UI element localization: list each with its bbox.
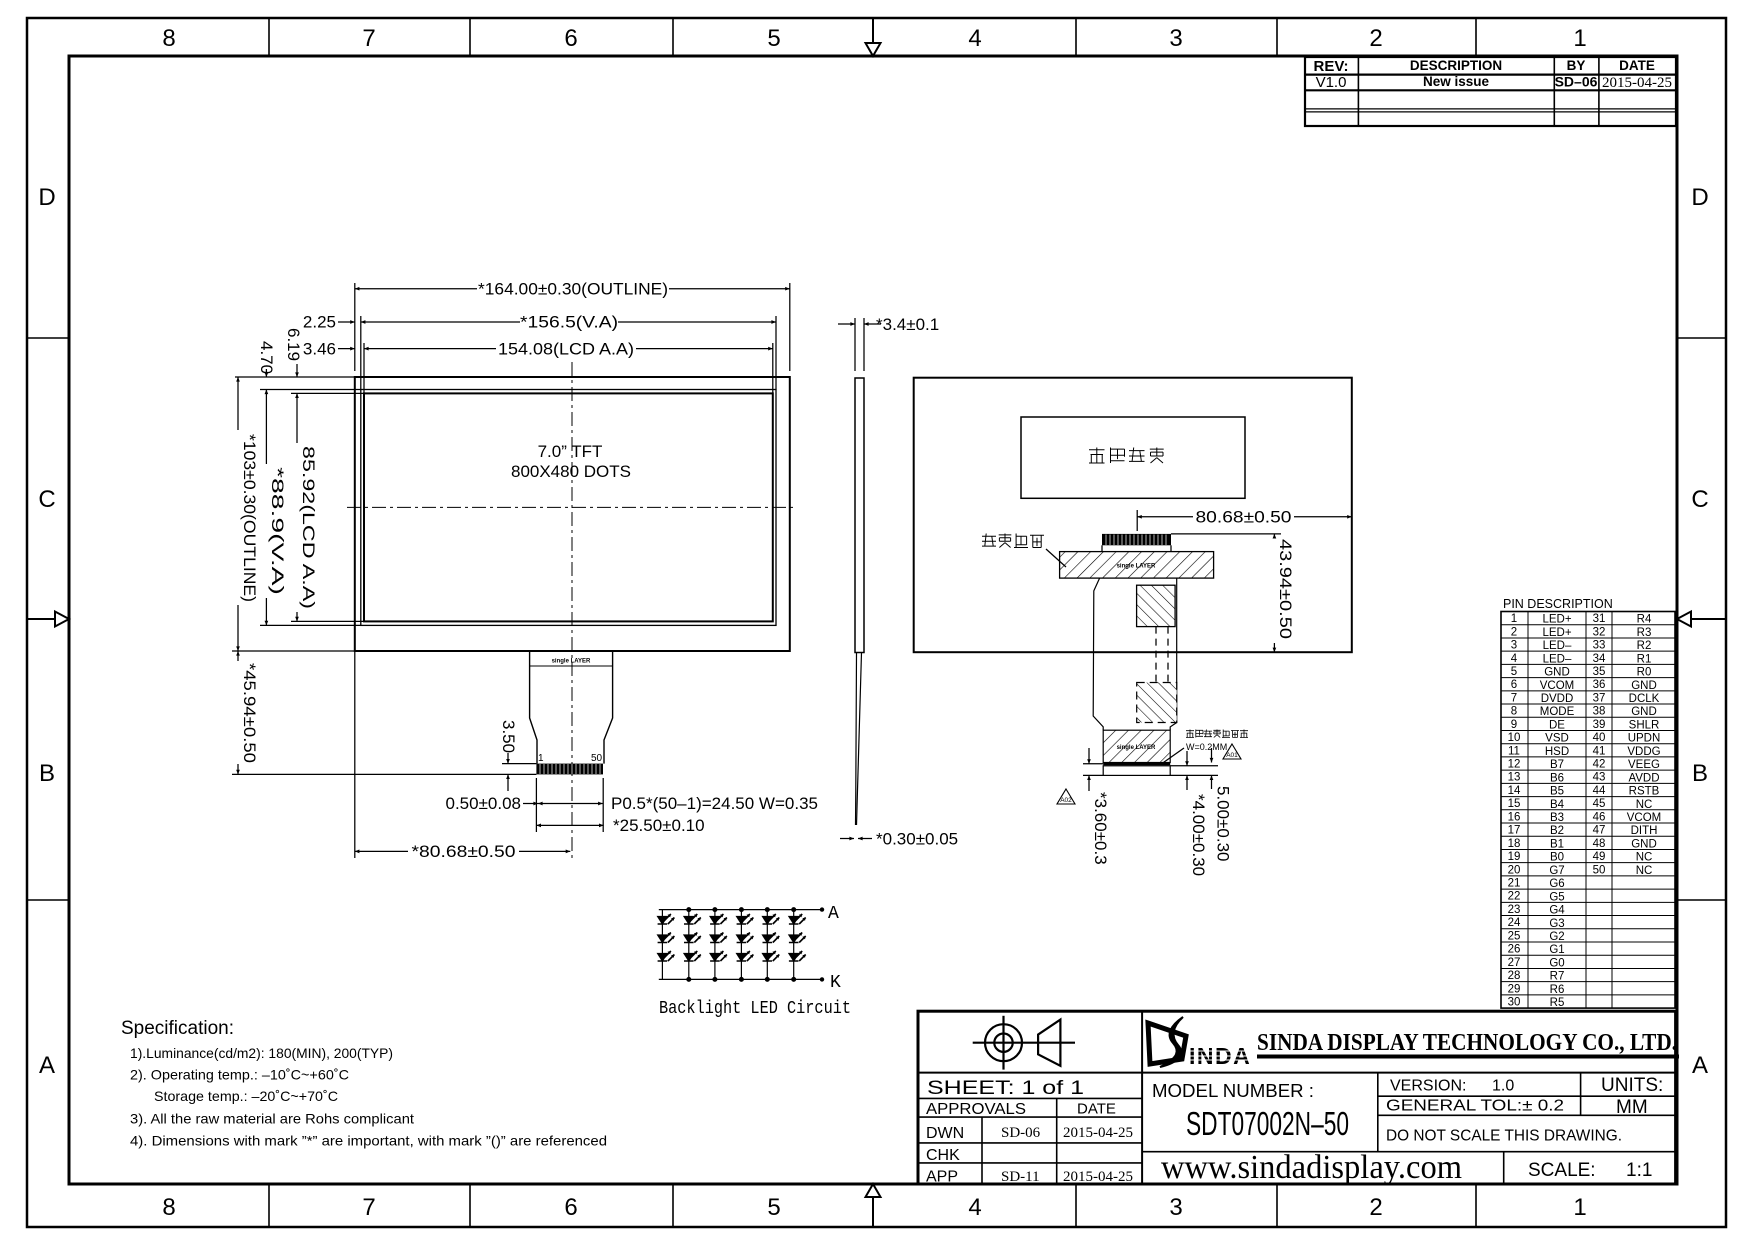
svg-text:800X480 DOTS: 800X480 DOTS	[511, 462, 631, 481]
svg-text:*3.4±0.1: *3.4±0.1	[876, 315, 939, 334]
svg-text:9: 9	[1511, 719, 1517, 731]
svg-text:7.0” TFT: 7.0” TFT	[538, 442, 603, 461]
svg-text:G5: G5	[1549, 891, 1564, 903]
svg-text:G6: G6	[1549, 878, 1564, 890]
svg-text:B5: B5	[1550, 786, 1564, 798]
svg-text:33: 33	[1593, 640, 1606, 652]
svg-text:*0.30±0.05: *0.30±0.05	[876, 829, 958, 848]
svg-text:SD–06: SD–06	[1555, 74, 1598, 90]
svg-text:*25.50±0.10: *25.50±0.10	[613, 816, 705, 835]
svg-text:R4: R4	[1637, 614, 1652, 626]
svg-text:85.92(LCD A.A): 85.92(LCD A.A)	[299, 446, 318, 609]
svg-text:SHEET: 1 of 1: SHEET: 1 of 1	[927, 1078, 1084, 1099]
svg-text:1: 1	[1573, 25, 1586, 52]
svg-text:3: 3	[1511, 640, 1517, 652]
svg-text:HSD: HSD	[1545, 746, 1569, 758]
svg-text:V1.0: V1.0	[1316, 74, 1347, 91]
svg-text:VCOM: VCOM	[1627, 812, 1662, 824]
svg-text:DO NOT SCALE THIS DRAWING.: DO NOT SCALE THIS DRAWING.	[1386, 1128, 1622, 1145]
svg-text:48: 48	[1593, 838, 1606, 850]
svg-text:REV:: REV:	[1313, 58, 1348, 75]
svg-text:1: 1	[1573, 1194, 1586, 1221]
svg-text:12: 12	[1508, 759, 1521, 771]
svg-text:17: 17	[1508, 825, 1521, 837]
svg-text:B: B	[1692, 760, 1708, 787]
svg-text:26: 26	[1508, 944, 1521, 956]
svg-text:5: 5	[767, 25, 780, 52]
svg-text:R6: R6	[1550, 984, 1565, 996]
svg-text:13: 13	[1508, 772, 1521, 784]
svg-text:G3: G3	[1549, 918, 1564, 930]
svg-text:NC: NC	[1636, 799, 1653, 811]
svg-text:GND: GND	[1631, 706, 1657, 718]
svg-text:*4.00±0.30: *4.00±0.30	[1189, 794, 1208, 876]
svg-text:22: 22	[1508, 891, 1521, 903]
svg-text:18: 18	[1508, 838, 1521, 850]
svg-text:B2: B2	[1550, 825, 1564, 837]
svg-text:4). Dimensions with mark ”: 4). Dimensions with mark ”*” are importa…	[130, 1133, 607, 1149]
svg-text:15: 15	[1508, 798, 1521, 810]
svg-text:28: 28	[1508, 970, 1521, 982]
svg-text:SDT07002N–50: SDT07002N–50	[1186, 1105, 1349, 1142]
svg-text:2: 2	[1369, 25, 1382, 52]
svg-text:Backlight LED Circuit: Backlight LED Circuit	[659, 999, 851, 1019]
svg-text:G7: G7	[1549, 865, 1564, 877]
svg-text:B7: B7	[1550, 759, 1564, 771]
svg-text:Storage temp.: –20˚C~+70˚C: Storage temp.: –20˚C~+70˚C	[154, 1088, 338, 1104]
svg-text:DITH: DITH	[1631, 825, 1658, 837]
svg-text:R2: R2	[1637, 640, 1652, 652]
svg-text:LED–: LED–	[1543, 640, 1572, 652]
svg-text:41: 41	[1593, 745, 1606, 757]
svg-text:DCLK: DCLK	[1629, 693, 1660, 705]
svg-text:DE: DE	[1549, 720, 1565, 732]
svg-text:C: C	[1691, 486, 1708, 513]
svg-text:4: 4	[1511, 653, 1518, 665]
svg-text:36: 36	[1593, 679, 1606, 691]
svg-text:SCALE:: SCALE:	[1528, 1160, 1596, 1181]
svg-text:B1: B1	[1550, 838, 1564, 850]
svg-text:G2: G2	[1549, 931, 1564, 943]
svg-text:35: 35	[1593, 666, 1606, 678]
svg-text:25: 25	[1508, 930, 1521, 942]
svg-text:NC: NC	[1636, 865, 1653, 877]
svg-text:APP: APP	[926, 1169, 958, 1186]
svg-text:1: 1	[538, 753, 544, 764]
svg-text:SD-11: SD-11	[1001, 1169, 1040, 1185]
svg-text:45: 45	[1593, 798, 1606, 810]
svg-text:LED+: LED+	[1542, 614, 1571, 626]
svg-text:B6: B6	[1550, 772, 1564, 784]
svg-text:32: 32	[1593, 626, 1606, 638]
svg-text:1: 1	[1511, 613, 1517, 625]
svg-text:VERSION:: VERSION:	[1390, 1078, 1466, 1095]
svg-text:2). Operating temp.: –10˚C~: 2). Operating temp.: –10˚C~+60˚C	[130, 1067, 349, 1083]
svg-text:2015-04-25: 2015-04-25	[1063, 1169, 1133, 1185]
svg-text:4: 4	[968, 25, 981, 52]
svg-text:G1: G1	[1549, 944, 1564, 956]
svg-text:MODE: MODE	[1540, 706, 1575, 718]
svg-text:5: 5	[767, 1194, 780, 1221]
svg-text:1:1: 1:1	[1626, 1160, 1652, 1181]
svg-text:UPDN: UPDN	[1628, 733, 1661, 745]
svg-text:R3: R3	[1637, 627, 1652, 639]
svg-text:1).Luminance(cd/m2): 180(MIN): 1).Luminance(cd/m2): 180(MIN), 200(TYP)	[130, 1045, 393, 1061]
svg-text:16: 16	[1508, 811, 1521, 823]
svg-text:VDDG: VDDG	[1627, 746, 1660, 758]
svg-text:single LAYER: single LAYER	[1117, 745, 1156, 751]
svg-text:7: 7	[362, 1194, 375, 1221]
svg-text:SHLR: SHLR	[1629, 720, 1660, 732]
svg-text:AVDD: AVDD	[1628, 772, 1659, 784]
svg-text:5.00±0.30: 5.00±0.30	[1213, 786, 1232, 862]
svg-text:single LAYER: single LAYER	[1117, 564, 1156, 570]
svg-text:50: 50	[591, 753, 603, 764]
svg-text:*164.00±0.30(OUTLINE): *164.00±0.30(OUTLINE)	[478, 280, 668, 299]
svg-text:*88.9(V.A): *88.9(V.A)	[268, 467, 287, 595]
svg-text:*103±0.30(OUTLINE): *103±0.30(OUTLINE)	[240, 434, 259, 602]
svg-text:GND: GND	[1631, 838, 1657, 850]
svg-text:47: 47	[1593, 825, 1606, 837]
svg-text:Specification:: Specification:	[121, 1018, 234, 1039]
svg-text:38: 38	[1593, 706, 1606, 718]
svg-text:40: 40	[1593, 732, 1606, 744]
svg-text:3: 3	[1169, 25, 1182, 52]
svg-text:DATE: DATE	[1077, 1101, 1116, 1118]
svg-text:VCOM: VCOM	[1540, 680, 1575, 692]
svg-text:R7: R7	[1550, 971, 1565, 983]
svg-text:27: 27	[1508, 957, 1521, 969]
svg-text:29: 29	[1508, 983, 1521, 995]
svg-text:10: 10	[1508, 732, 1521, 744]
svg-text:2: 2	[1369, 1194, 1382, 1221]
svg-text:8: 8	[162, 1194, 175, 1221]
svg-text:37: 37	[1593, 692, 1606, 704]
svg-text:6: 6	[1511, 679, 1517, 691]
svg-text:VEEG: VEEG	[1628, 759, 1660, 771]
svg-text:D: D	[38, 184, 55, 211]
svg-text:MM: MM	[1616, 1097, 1648, 1118]
svg-text:2.25: 2.25	[303, 313, 336, 332]
svg-text:46: 46	[1593, 811, 1606, 823]
svg-text:43.94±0.50: 43.94±0.50	[1276, 539, 1295, 639]
svg-text:MODEL NUMBER :: MODEL NUMBER :	[1152, 1081, 1314, 1101]
svg-text:single LAYER: single LAYER	[552, 659, 591, 665]
svg-text:P0.5*(50–1)=24.50 W=0.35: P0.5*(50–1)=24.50 W=0.35	[611, 794, 818, 813]
svg-text:PIN DESCRIPTION: PIN DESCRIPTION	[1503, 597, 1613, 611]
svg-text:8: 8	[162, 25, 175, 52]
svg-text:B: B	[39, 760, 55, 787]
svg-text:A01: A01	[1226, 752, 1238, 759]
svg-text:3: 3	[1169, 1194, 1182, 1221]
svg-text:20: 20	[1508, 864, 1521, 876]
svg-text:44: 44	[1593, 785, 1606, 797]
svg-text:*3.60±0.3: *3.60±0.3	[1091, 792, 1110, 865]
svg-text:31: 31	[1593, 613, 1606, 625]
svg-text:GENERAL TOL:± 0.2: GENERAL TOL:± 0.2	[1386, 1098, 1564, 1115]
svg-text:SD-06: SD-06	[1001, 1125, 1041, 1141]
svg-text:7: 7	[1511, 692, 1517, 704]
svg-text:APPROVALS: APPROVALS	[926, 1101, 1026, 1118]
svg-text:3). All the raw material: 3). All the raw material are Rohs compli…	[130, 1111, 414, 1127]
svg-text:NC: NC	[1636, 852, 1653, 864]
svg-text:UNITS:: UNITS:	[1601, 1075, 1663, 1096]
svg-text:2015-04-25: 2015-04-25	[1063, 1125, 1133, 1141]
svg-text:B4: B4	[1550, 799, 1565, 811]
svg-text:*80.68±0.50: *80.68±0.50	[412, 842, 516, 861]
svg-text:4: 4	[968, 1194, 981, 1221]
svg-text:SINDA DISPLAY TECHNOLOGY CO.: SINDA DISPLAY TECHNOLOGY CO., LTD.	[1257, 1030, 1677, 1056]
svg-text:D: D	[1691, 184, 1708, 211]
svg-text:RSTB: RSTB	[1629, 786, 1660, 798]
svg-text:GND: GND	[1544, 667, 1570, 679]
svg-text:W=0.2MM: W=0.2MM	[1186, 742, 1227, 752]
svg-text:2: 2	[1511, 626, 1517, 638]
svg-text:154.08(LCD A.A): 154.08(LCD A.A)	[498, 339, 634, 358]
svg-text:6.19: 6.19	[284, 328, 303, 361]
svg-text:R5: R5	[1550, 997, 1565, 1009]
svg-text:39: 39	[1593, 719, 1606, 731]
svg-text:14: 14	[1508, 785, 1521, 797]
svg-text:DVDD: DVDD	[1541, 693, 1574, 705]
svg-text:VSD: VSD	[1545, 733, 1569, 745]
svg-text:LED–: LED–	[1543, 653, 1572, 665]
svg-text:0.50±0.08: 0.50±0.08	[445, 794, 521, 813]
svg-text:6: 6	[564, 1194, 577, 1221]
svg-text:A: A	[1692, 1052, 1708, 1079]
svg-text:R1: R1	[1637, 653, 1652, 665]
svg-text:C: C	[38, 486, 55, 513]
svg-text:3.50: 3.50	[499, 720, 518, 753]
svg-text:LED+: LED+	[1542, 627, 1571, 639]
svg-text:42: 42	[1593, 759, 1606, 771]
svg-text:3.46: 3.46	[303, 339, 336, 358]
svg-text:11: 11	[1508, 745, 1520, 757]
svg-text:GND: GND	[1631, 680, 1657, 692]
svg-text:24: 24	[1508, 917, 1521, 929]
svg-text:DWN: DWN	[926, 1125, 964, 1142]
svg-text:www.sindadisplay.com: www.sindadisplay.com	[1161, 1149, 1462, 1186]
svg-text:DESCRIPTION: DESCRIPTION	[1410, 58, 1502, 73]
svg-text:50: 50	[1593, 864, 1606, 876]
svg-text:B3: B3	[1550, 812, 1564, 824]
svg-text:DATE: DATE	[1619, 58, 1655, 73]
svg-text:2015-04-25: 2015-04-25	[1602, 75, 1672, 91]
svg-text:80.68±0.50: 80.68±0.50	[1196, 508, 1292, 527]
svg-text:BY: BY	[1567, 58, 1586, 73]
svg-text:43: 43	[1593, 772, 1606, 784]
svg-text:*45.94±0.50: *45.94±0.50	[240, 663, 259, 763]
svg-text:A: A	[828, 904, 839, 924]
svg-text:49: 49	[1593, 851, 1606, 863]
svg-text:A: A	[39, 1052, 55, 1079]
svg-text:B0: B0	[1550, 852, 1564, 864]
svg-text:G4: G4	[1549, 905, 1565, 917]
svg-text:New issue: New issue	[1423, 74, 1490, 89]
svg-text:1.0: 1.0	[1492, 1078, 1514, 1095]
svg-text:A02: A02	[1060, 797, 1072, 804]
svg-text:7: 7	[362, 25, 375, 52]
svg-text:*156.5(V.A): *156.5(V.A)	[520, 313, 618, 332]
svg-text:5: 5	[1511, 666, 1517, 678]
svg-text:21: 21	[1508, 878, 1521, 890]
svg-text:K: K	[830, 973, 841, 993]
svg-text:23: 23	[1508, 904, 1521, 916]
svg-text:G0: G0	[1549, 957, 1564, 969]
svg-text:19: 19	[1508, 851, 1521, 863]
svg-text:6: 6	[564, 25, 577, 52]
svg-text:30: 30	[1508, 997, 1521, 1009]
svg-text:R0: R0	[1637, 667, 1652, 679]
svg-text:8: 8	[1511, 706, 1517, 718]
svg-text:34: 34	[1593, 653, 1606, 665]
svg-text:CHK: CHK	[926, 1147, 960, 1164]
